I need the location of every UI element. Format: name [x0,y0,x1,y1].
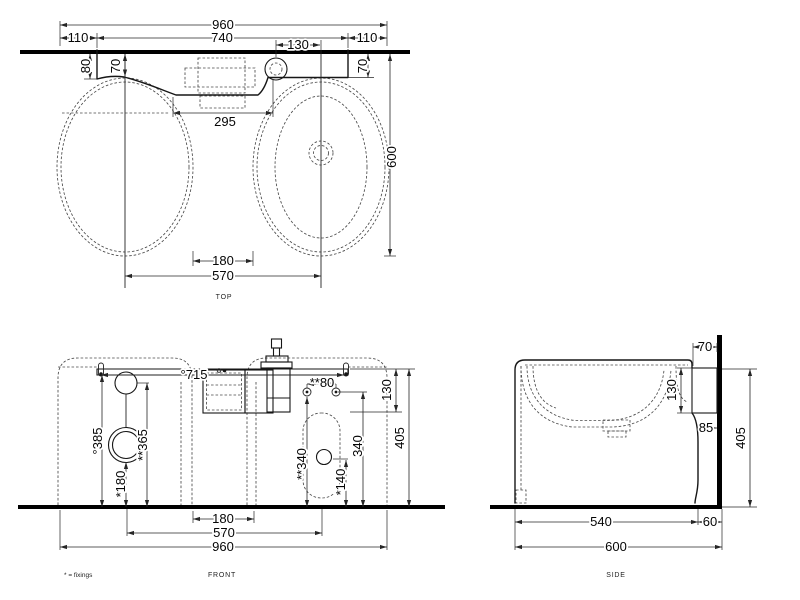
dispenser-box-lower [200,96,245,108]
top-view: 960 110 740 130 110 80 70 70 295 600 180… [20,17,410,301]
dim-top-centre-depth-left: 70 [108,59,123,73]
dim-side-overall-depth: 600 [605,539,627,554]
box-fixing-dot [223,369,227,373]
dim-side-bracket-height: 130 [664,379,679,401]
dim-front-overall-width: 960 [212,539,234,554]
dim-top-centre-depth-right: 70 [355,59,370,73]
dim-side-bracket-depth: 70 [698,339,712,354]
dim-front-overall-height: 405 [392,427,407,449]
wall-bracket [692,368,717,413]
right-waste-hole [317,450,332,465]
dim-side-wall-gap: 60 [703,514,717,529]
dim-front-overflow-height: **365 [135,429,150,461]
siphon-cover-box [203,370,245,413]
dispenser-box-wide [185,68,255,87]
waste-recess-lower [608,431,626,437]
side-view-label: SIDE [606,572,626,579]
dim-side-back-clearance: 85 [699,420,713,435]
washbasin-dimension-drawing: 960 110 740 130 110 80 70 70 295 600 180… [0,0,800,600]
side-view-geometry [490,335,757,509]
dispenser-box [198,58,245,93]
top-view-label: TOP [216,294,233,301]
waste-recess [603,420,630,431]
dim-front-fixing-height-inner: **340 [294,448,309,480]
dim-front-apron-height: 130 [379,379,394,401]
front-view-label: FRONT [208,572,236,579]
dim-top-edge-depth-left: 80 [78,59,93,73]
side-back-profile [692,413,698,503]
bowl-section-inner [527,366,664,421]
dim-front-waste-height-right: *140 [333,469,348,496]
dim-front-fixing-pair-span: **80 [310,375,335,390]
dim-front-trap-height: *180 [113,471,128,498]
dim-side-overall-height: 405 [733,427,748,449]
dim-top-recess-width: 295 [214,114,236,129]
centre-box [245,370,273,413]
siphon-cover-box-inner [207,373,242,410]
bowl-section-outer [521,366,671,427]
tap-hole-inner [270,63,282,75]
tap-hole [265,58,287,80]
side-foot [516,490,526,503]
tap-base [266,356,288,362]
fixings-footnote: * = fixings [64,572,93,579]
counter-front-edge [97,50,348,95]
dim-front-bowl-gap: 180 [212,511,234,526]
fixing-dot-right [344,372,348,376]
tap-stem [274,348,280,356]
dim-top-counter-width: 740 [211,30,233,45]
tap-plinth [261,362,292,368]
side-view: 70 130 85 405 540 60 600 SIDE [490,335,757,579]
dim-front-bowl-centres: 570 [213,525,235,540]
dim-top-tap-to-centre: 130 [287,37,309,52]
front-view: °715 **80 130 °385 **365 *180 **340 *140… [18,339,445,579]
technical-drawing-sheet: 960 110 740 130 110 80 70 70 295 600 180… [0,0,800,600]
dim-side-base-depth: 540 [590,514,612,529]
dim-top-offset-right: 110 [357,30,378,45]
dim-top-offset-left: 110 [68,30,89,45]
dim-top-bowl-gap: 180 [212,253,234,268]
dim-front-fixing-height: 340 [350,435,365,457]
front-view-geometry [18,339,445,507]
dim-top-overall-depth: 600 [384,146,399,168]
dim-top-bowl-centres: 570 [212,268,234,283]
tap-handle [272,339,282,348]
dim-front-waste-height-left: °385 [90,428,105,455]
front-view-dimensions [60,369,415,550]
bowl-rim-front [533,366,556,408]
dim-front-fixing-span: °715 [181,367,208,382]
